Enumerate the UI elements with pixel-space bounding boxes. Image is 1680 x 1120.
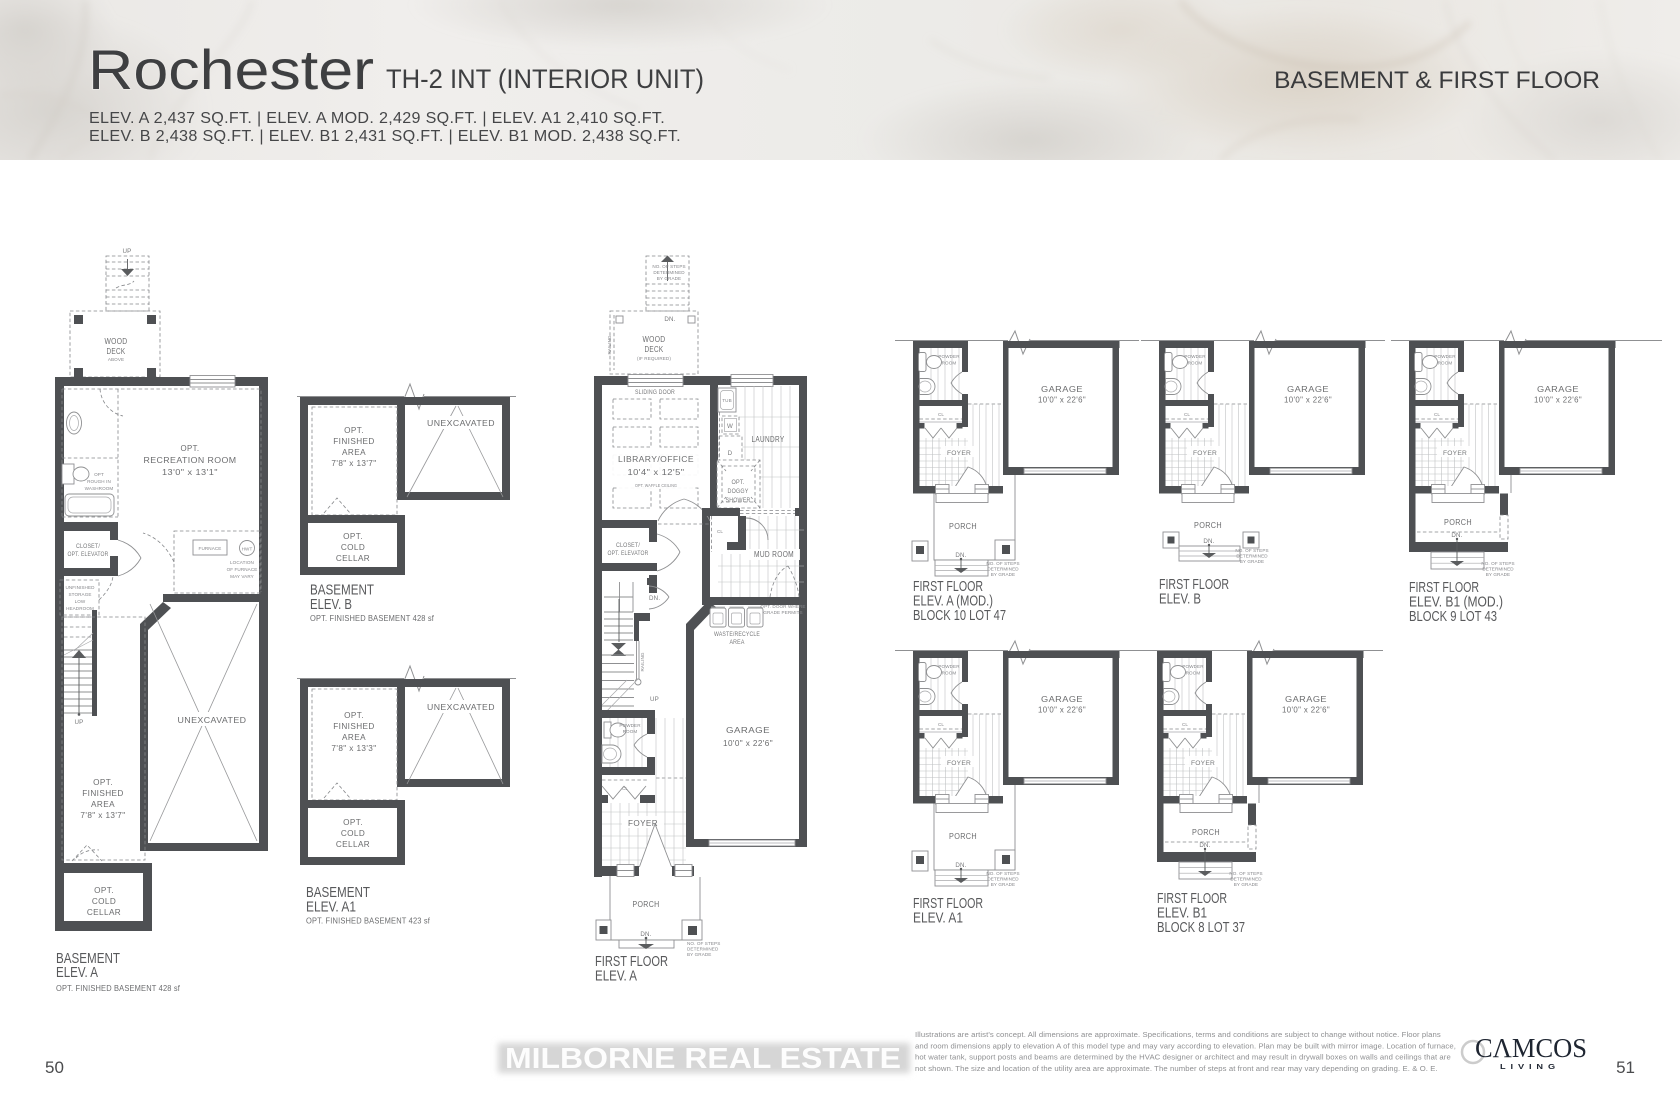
svg-text:7'8" x 13'3": 7'8" x 13'3": [331, 744, 376, 753]
svg-text:SLIDING DOOR: SLIDING DOOR: [635, 389, 675, 396]
svg-text:FOYER: FOYER: [628, 819, 658, 828]
svg-text:D: D: [728, 450, 733, 457]
svg-text:ABOVE: ABOVE: [108, 357, 124, 362]
svg-text:TH-2 INT (INTERIOR UNIT): TH-2 INT (INTERIOR UNIT): [386, 64, 704, 94]
svg-text:BASEMENT & FIRST FLOOR: BASEMENT & FIRST FLOOR: [1274, 67, 1600, 94]
svg-text:STORAGE: STORAGE: [68, 592, 91, 597]
svg-text:DETERMINED: DETERMINED: [687, 947, 719, 952]
svg-text:hot water tank, support posts: hot water tank, support posts and beams …: [915, 1053, 1451, 1062]
svg-text:OPT.: OPT.: [344, 426, 364, 435]
svg-text:not shown. The size and locati: not shown. The size and location of the …: [915, 1064, 1438, 1073]
svg-text:Illustrations are artist's con: Illustrations are artist's concept. All …: [915, 1030, 1441, 1039]
svg-text:RAILING: RAILING: [607, 335, 612, 354]
svg-text:RAILING: RAILING: [640, 652, 645, 671]
svg-text:W: W: [727, 423, 733, 430]
svg-text:UNEXCAVATED: UNEXCAVATED: [178, 716, 247, 725]
svg-text:OF FURNACE: OF FURNACE: [227, 567, 258, 572]
svg-text:LOCATION: LOCATION: [230, 560, 254, 565]
svg-text:BLOCK 10 LOT 47: BLOCK 10 LOT 47: [913, 607, 1006, 624]
svg-text:SHOWER: SHOWER: [726, 497, 751, 504]
svg-text:10'4" x 12'5": 10'4" x 12'5": [628, 468, 685, 477]
svg-text:FINISHED: FINISHED: [333, 437, 374, 446]
svg-text:DETERMINED: DETERMINED: [653, 270, 685, 275]
svg-text:LAUNDRY: LAUNDRY: [752, 435, 785, 444]
svg-text:ELEV. A 2,437 SQ.FT. | ELEV.: ELEV. A 2,437 SQ.FT. | ELEV. A MOD. 2,42…: [89, 110, 665, 127]
svg-text:UP: UP: [123, 248, 132, 255]
svg-text:LIVING: LIVING: [1500, 1062, 1560, 1071]
svg-text:ELEV. A: ELEV. A: [56, 964, 98, 981]
svg-text:WOOD: WOOD: [643, 335, 666, 344]
svg-text:OPT.: OPT.: [343, 818, 363, 827]
svg-text:CELLAR: CELLAR: [87, 908, 121, 917]
svg-text:LOW: LOW: [75, 599, 86, 604]
svg-text:CLOSET/: CLOSET/: [76, 543, 100, 550]
svg-text:ELEV. B: ELEV. B: [310, 596, 352, 613]
svg-text:DECK: DECK: [107, 347, 126, 356]
svg-text:FURNACE: FURNACE: [199, 546, 222, 551]
svg-text:(IF REQUIRED): (IF REQUIRED): [637, 356, 671, 361]
svg-text:MUD ROOM: MUD ROOM: [754, 550, 794, 559]
svg-text:NO. OF STEPS: NO. OF STEPS: [687, 941, 720, 946]
svg-text:DECK: DECK: [645, 345, 664, 354]
svg-text:WASTE/RECYCLE: WASTE/RECYCLE: [714, 631, 760, 638]
svg-text:CL: CL: [717, 529, 723, 534]
svg-text:RECREATION ROOM: RECREATION ROOM: [144, 456, 237, 465]
svg-text:BLOCK 9 LOT 43: BLOCK 9 LOT 43: [1409, 608, 1497, 625]
svg-text:OPT.: OPT.: [181, 444, 200, 453]
svg-text:BY GRADE: BY GRADE: [687, 952, 711, 957]
svg-text:UNFINISHED: UNFINISHED: [65, 585, 95, 590]
svg-text:ELEV. B 2,438 SQ.FT. | ELEV.: ELEV. B 2,438 SQ.FT. | ELEV. B1 2,431 SQ…: [89, 128, 681, 145]
svg-text:UNEXCAVATED: UNEXCAVATED: [427, 703, 495, 712]
svg-text:7'8" x 13'7": 7'8" x 13'7": [331, 459, 376, 468]
svg-text:UP: UP: [650, 696, 659, 703]
svg-text:UP: UP: [75, 719, 84, 726]
svg-text:AREA: AREA: [342, 733, 366, 742]
svg-text:AREA: AREA: [91, 800, 115, 809]
svg-text:GRADE PERMITS: GRADE PERMITS: [763, 610, 802, 615]
svg-text:CΛMCOS: CΛMCOS: [1475, 1033, 1587, 1063]
svg-text:OPT.: OPT.: [344, 711, 364, 720]
svg-text:GARAGE: GARAGE: [726, 726, 770, 735]
svg-text:COLD: COLD: [92, 897, 116, 906]
svg-text:OPT.: OPT.: [343, 532, 363, 541]
svg-text:OPT.: OPT.: [732, 479, 745, 486]
svg-text:NO. OF STEPS: NO. OF STEPS: [652, 264, 685, 269]
svg-text:BLOCK 8 LOT 37: BLOCK 8 LOT 37: [1157, 919, 1245, 936]
svg-text:MAY VARY: MAY VARY: [230, 574, 254, 579]
svg-text:OPT. FINISHED BASEMENT 428 sf: OPT. FINISHED BASEMENT 428 sf: [56, 983, 180, 993]
svg-text:OPT.: OPT.: [93, 778, 113, 787]
svg-text:DN.: DN.: [649, 595, 660, 602]
svg-text:PORCH: PORCH: [633, 900, 660, 909]
svg-text:DN.: DN.: [664, 316, 675, 323]
svg-text:ROUGH IN: ROUGH IN: [87, 479, 111, 484]
svg-text:WASHROOM: WASHROOM: [85, 486, 114, 491]
svg-text:BY GRADE: BY GRADE: [657, 276, 681, 281]
svg-text:TUB: TUB: [722, 398, 732, 403]
svg-text:OPT. ELEVATOR: OPT. ELEVATOR: [68, 551, 109, 558]
svg-text:CELLAR: CELLAR: [336, 554, 370, 563]
svg-text:COLD: COLD: [341, 829, 365, 838]
svg-text:OPT.: OPT.: [94, 886, 114, 895]
svg-text:OPT. FINISHED BASEMENT 428 sf: OPT. FINISHED BASEMENT 428 sf: [310, 613, 434, 623]
svg-text:COLD: COLD: [341, 543, 365, 552]
svg-text:DOGGY: DOGGY: [728, 488, 749, 495]
svg-text:ROOM: ROOM: [623, 729, 638, 734]
svg-text:ELEV. A: ELEV. A: [595, 968, 637, 985]
svg-text:and room dimensions apply to e: and room dimensions apply to elevation A…: [915, 1041, 1456, 1050]
svg-text:7'8" x 13'7": 7'8" x 13'7": [80, 811, 125, 820]
svg-text:LIBRARY/OFFICE: LIBRARY/OFFICE: [618, 455, 694, 464]
svg-text:HWT: HWT: [242, 547, 253, 552]
svg-text:POWDER: POWDER: [619, 723, 641, 728]
svg-text:AREA: AREA: [342, 448, 366, 457]
svg-text:WOOD: WOOD: [105, 337, 128, 346]
svg-text:13'0" x 13'1": 13'0" x 13'1": [162, 468, 218, 477]
svg-text:MILBORNE REAL ESTATE: MILBORNE REAL ESTATE: [505, 1043, 901, 1075]
svg-text:OPT: OPT: [94, 472, 104, 477]
svg-text:FINISHED: FINISHED: [82, 789, 123, 798]
svg-text:CELLAR: CELLAR: [336, 840, 370, 849]
svg-text:51: 51: [1616, 1058, 1635, 1077]
svg-text:HEADROOM: HEADROOM: [66, 606, 94, 611]
svg-text:ELEV. B: ELEV. B: [1159, 591, 1201, 608]
svg-text:AREA: AREA: [730, 639, 746, 646]
svg-text:50: 50: [45, 1058, 64, 1077]
svg-text:Rochester: Rochester: [88, 38, 374, 101]
svg-text:UNEXCAVATED: UNEXCAVATED: [427, 419, 495, 428]
svg-text:CLOSET/: CLOSET/: [616, 542, 640, 549]
svg-text:OPT. ELEVATOR: OPT. ELEVATOR: [608, 550, 649, 557]
svg-text:OPT. DOOR WHERE: OPT. DOOR WHERE: [760, 604, 805, 609]
svg-text:ELEV. A1: ELEV. A1: [306, 899, 356, 916]
svg-text:OPT. WAFFLE CEILING: OPT. WAFFLE CEILING: [635, 483, 677, 488]
svg-text:OPT. FINISHED BASEMENT 423 sf: OPT. FINISHED BASEMENT 423 sf: [306, 916, 430, 926]
svg-text:FINISHED: FINISHED: [333, 722, 374, 731]
svg-text:10'0" x 22'6": 10'0" x 22'6": [723, 739, 773, 748]
svg-text:ELEV. A1: ELEV. A1: [913, 910, 963, 927]
